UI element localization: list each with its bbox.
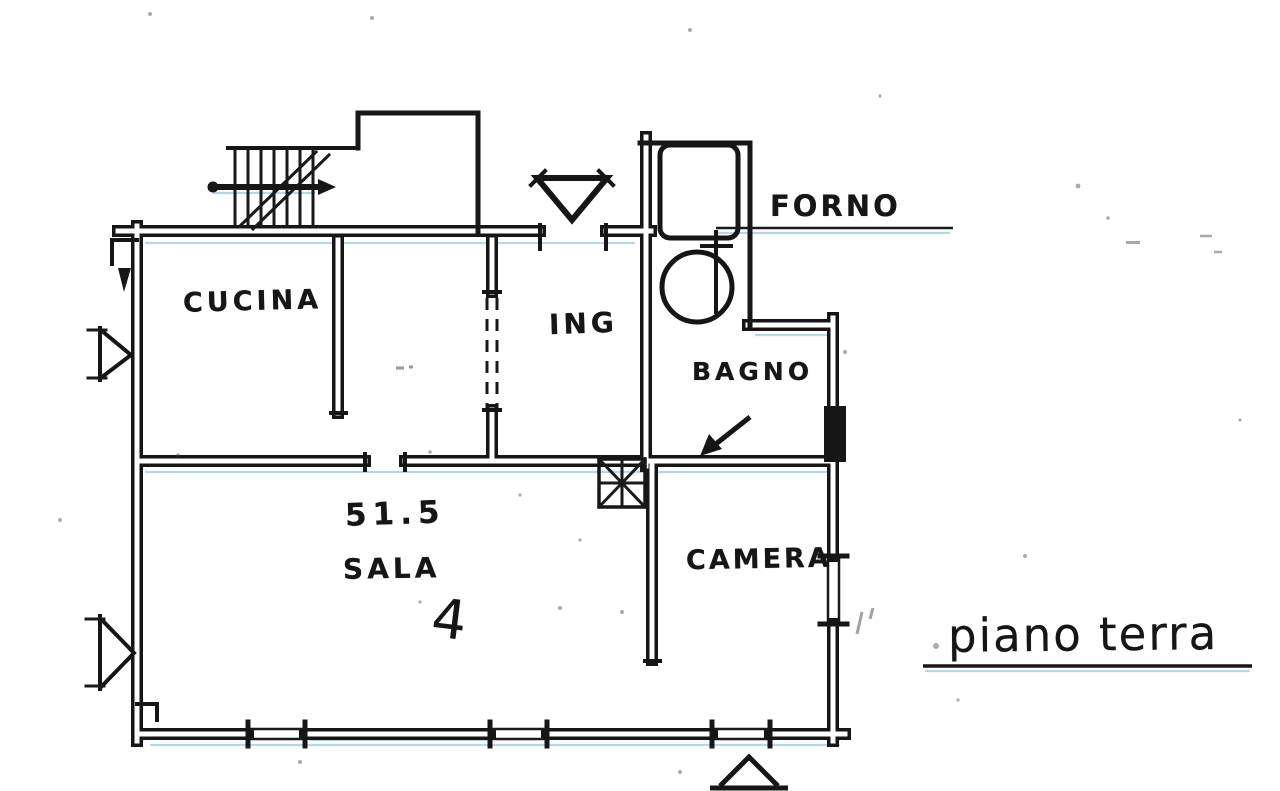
window-icon-bottom-1 (248, 722, 305, 746)
bumpout-walls (358, 113, 478, 231)
scan-tint-artifacts (145, 193, 1250, 745)
bagno-window-blob (824, 406, 846, 462)
window-icon-bottom-3 (712, 722, 770, 746)
floor-plan-drawing (0, 0, 1280, 791)
room-label-bagno: BAGNO (692, 357, 813, 386)
room-label-ingresso: ING (548, 306, 618, 341)
entrance-triangle-icon-bottom (710, 757, 788, 788)
window-triangle-icon-upper (88, 328, 131, 380)
entrance-door-icon (531, 171, 613, 220)
window-triangle-icon-lower (86, 616, 134, 689)
room-label-sala: SALA (343, 551, 441, 586)
window-icon-bottom-2 (490, 722, 547, 746)
room-label-cucina: CUCINA (183, 284, 323, 319)
wall-mark (118, 268, 131, 292)
bagno-door-arrow-icon (700, 417, 750, 456)
stairs-icon (208, 148, 359, 229)
room-label-camera: CAMERA (686, 543, 832, 577)
plan-caption-piano-terra: piano terra (948, 606, 1219, 663)
dashed-partition (487, 298, 497, 408)
flue-icon (599, 459, 645, 507)
forno-annotation: FORNO (770, 189, 901, 223)
scanned-floor-plan-page: CUCINA ING BAGNO 51.5 SALA 4 CAMERA FORN… (0, 0, 1280, 791)
sala-area-annotation: 51.5 (344, 494, 446, 533)
